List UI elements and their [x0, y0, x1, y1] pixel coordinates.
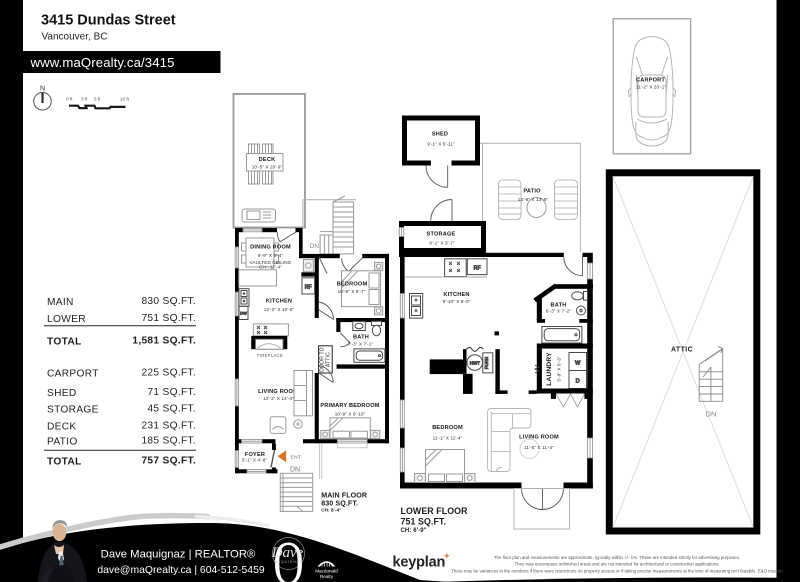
svg-text:10 ft: 10 ft	[120, 97, 130, 102]
svg-text:DECK: DECK	[259, 157, 276, 163]
svg-text:13'-8" X 13'-9": 13'-8" X 13'-9"	[518, 197, 549, 202]
svg-text:RF: RF	[305, 285, 312, 291]
svg-text:ATTIC: ATTIC	[326, 352, 332, 367]
svg-text:45 SQ.FT.: 45 SQ.FT.	[147, 404, 196, 415]
svg-text:LOWER: LOWER	[47, 314, 86, 325]
svg-text:FIREPLACE: FIREPLACE	[257, 353, 283, 358]
svg-text:PATIO: PATIO	[47, 437, 78, 448]
svg-text:Dave Maquignaz | REALTOR®: Dave Maquignaz | REALTOR®	[101, 549, 256, 561]
svg-text:225 SQ.FT.: 225 SQ.FT.	[141, 368, 196, 379]
svg-text:RF: RF	[474, 265, 481, 271]
svg-text:PRIMARY BEDROOM: PRIMARY BEDROOM	[320, 403, 379, 409]
svg-text:5 ft: 5 ft	[94, 97, 101, 102]
svg-text:10'-9" X 9'-7": 10'-9" X 9'-7"	[338, 289, 366, 294]
svg-text:CH: 6'-9": CH: 6'-9"	[401, 528, 427, 534]
svg-text:Macdonald: Macdonald	[315, 569, 338, 574]
svg-text:11'-1" X 11'-4": 11'-1" X 11'-4"	[433, 435, 463, 440]
svg-text:MAQUIGNAZ: MAQUIGNAZ	[274, 560, 303, 564]
svg-text:CARPORT: CARPORT	[47, 369, 99, 380]
svg-text:DECK: DECK	[47, 422, 77, 433]
svg-text:10'-9" X 9'-10": 10'-9" X 9'-10"	[335, 412, 366, 417]
svg-text:12'-2" X 14'-4": 12'-2" X 14'-4"	[263, 396, 294, 401]
svg-text:STORAGE: STORAGE	[427, 232, 456, 238]
svg-text:Realty: Realty	[320, 574, 334, 579]
svg-text:231 SQ.FT.: 231 SQ.FT.	[141, 421, 196, 432]
svg-text:keyplan: keyplan	[393, 555, 446, 571]
svg-text:dave@maQrealty.ca | 604-512-54: dave@maQrealty.ca | 604-512-5459	[97, 565, 264, 576]
svg-text:DN: DN	[290, 467, 300, 474]
svg-text:11'-5" X 11'-4": 11'-5" X 11'-4"	[524, 445, 554, 450]
svg-text:MAIN FLOOR: MAIN FLOOR	[321, 492, 367, 500]
svg-text:KITCHEN: KITCHEN	[443, 292, 469, 298]
svg-text:TOTAL: TOTAL	[47, 337, 82, 348]
svg-text:11'-2" X 20'-1": 11'-2" X 20'-1"	[636, 85, 666, 90]
svg-text:W: W	[575, 361, 581, 367]
svg-text:757 SQ.FT.: 757 SQ.FT.	[141, 456, 196, 467]
svg-text:0 ft: 0 ft	[66, 97, 73, 102]
svg-text:D: D	[576, 379, 580, 385]
svg-text:9'-10" X 8'-0": 9'-10" X 8'-0"	[443, 299, 471, 304]
svg-text:KITCHEN: KITCHEN	[266, 299, 292, 305]
svg-text:PATIO: PATIO	[523, 188, 541, 194]
svg-text:9'-1" X 3'-7": 9'-1" X 3'-7"	[429, 241, 454, 246]
svg-text:BEDROOM: BEDROOM	[432, 425, 463, 431]
svg-text:They may encompass unfinished: They may encompass unfinished areas and …	[514, 562, 719, 567]
svg-text:BATH: BATH	[551, 302, 567, 308]
svg-text:3415 Dundas Street: 3415 Dundas Street	[41, 13, 176, 29]
svg-text:830 SQ.FT.: 830 SQ.FT.	[141, 296, 196, 307]
svg-text:BEDROOM: BEDROOM	[337, 282, 368, 288]
svg-text:6'-3" X 7'-2": 6'-3" X 7'-2"	[546, 309, 571, 314]
svg-text:5'-1" X 4'-8": 5'-1" X 4'-8"	[242, 457, 267, 462]
svg-text:CH: 8'-4": CH: 8'-4"	[321, 507, 341, 512]
svg-text:LIVING ROOM: LIVING ROOM	[519, 434, 559, 440]
svg-text:185 SQ.FT.: 185 SQ.FT.	[141, 436, 196, 447]
svg-text:12'-2" X 10'-5": 12'-2" X 10'-5"	[264, 307, 295, 312]
svg-text:5'-9" X 6'-3": 5'-9" X 6'-3"	[557, 356, 562, 381]
svg-text:TOTAL: TOTAL	[47, 457, 82, 468]
svg-text:1,581 SQ.FT.: 1,581 SQ.FT.	[132, 336, 196, 347]
svg-text:Vancouver, BC: Vancouver, BC	[42, 32, 108, 43]
svg-text:FURN: FURN	[484, 357, 489, 369]
svg-text:830 SQ.FT.: 830 SQ.FT.	[321, 499, 358, 507]
svg-text:9'-1" X 5'-11": 9'-1" X 5'-11"	[427, 142, 455, 147]
svg-text:751 SQ.FT.: 751 SQ.FT.	[141, 313, 196, 324]
svg-text:N: N	[40, 86, 45, 93]
svg-text:3 ft: 3 ft	[81, 97, 88, 102]
svg-text:7'-3" X 7'-1": 7'-3" X 7'-1"	[348, 341, 373, 346]
svg-text:ATTIC: ATTIC	[671, 347, 693, 354]
svg-text:CH : 11'-4": CH : 11'-4"	[259, 265, 282, 270]
svg-text:LAUNDRY: LAUNDRY	[546, 352, 553, 386]
svg-text:DN: DN	[310, 243, 320, 250]
svg-text:ENT: ENT	[291, 455, 302, 461]
svg-text:DINING ROOM: DINING ROOM	[250, 245, 291, 251]
svg-text:SHED: SHED	[47, 388, 77, 399]
svg-text:SHED: SHED	[432, 132, 448, 138]
svg-text:751 SQ.FT.: 751 SQ.FT.	[401, 517, 447, 527]
svg-text:71 SQ.FT.: 71 SQ.FT.	[147, 387, 196, 398]
svg-text:MAIN: MAIN	[47, 297, 74, 308]
svg-text:There may be variances in the: There may be variances in the numbers if…	[451, 568, 783, 573]
svg-text:The floor plan and measurement: The floor plan and measurements are appr…	[494, 555, 740, 560]
svg-text:HWT: HWT	[470, 360, 480, 365]
svg-text:CARPORT: CARPORT	[636, 77, 665, 83]
svg-text:www.maQrealty.ca/3415: www.maQrealty.ca/3415	[30, 55, 175, 70]
svg-text:DN: DN	[706, 410, 717, 419]
svg-text:LOWER FLOOR: LOWER FLOOR	[401, 506, 469, 516]
svg-text:BATH: BATH	[353, 335, 369, 341]
svg-text:9'-9" X 6'-4": 9'-9" X 6'-4"	[258, 253, 283, 258]
svg-text:STORAGE: STORAGE	[47, 405, 99, 416]
svg-text:10'-5" X 20'-9": 10'-5" X 20'-9"	[252, 165, 283, 170]
svg-text:LIVING ROOM: LIVING ROOM	[258, 389, 298, 395]
svg-text:Dave: Dave	[271, 545, 304, 561]
svg-text:DW: DW	[240, 311, 247, 316]
